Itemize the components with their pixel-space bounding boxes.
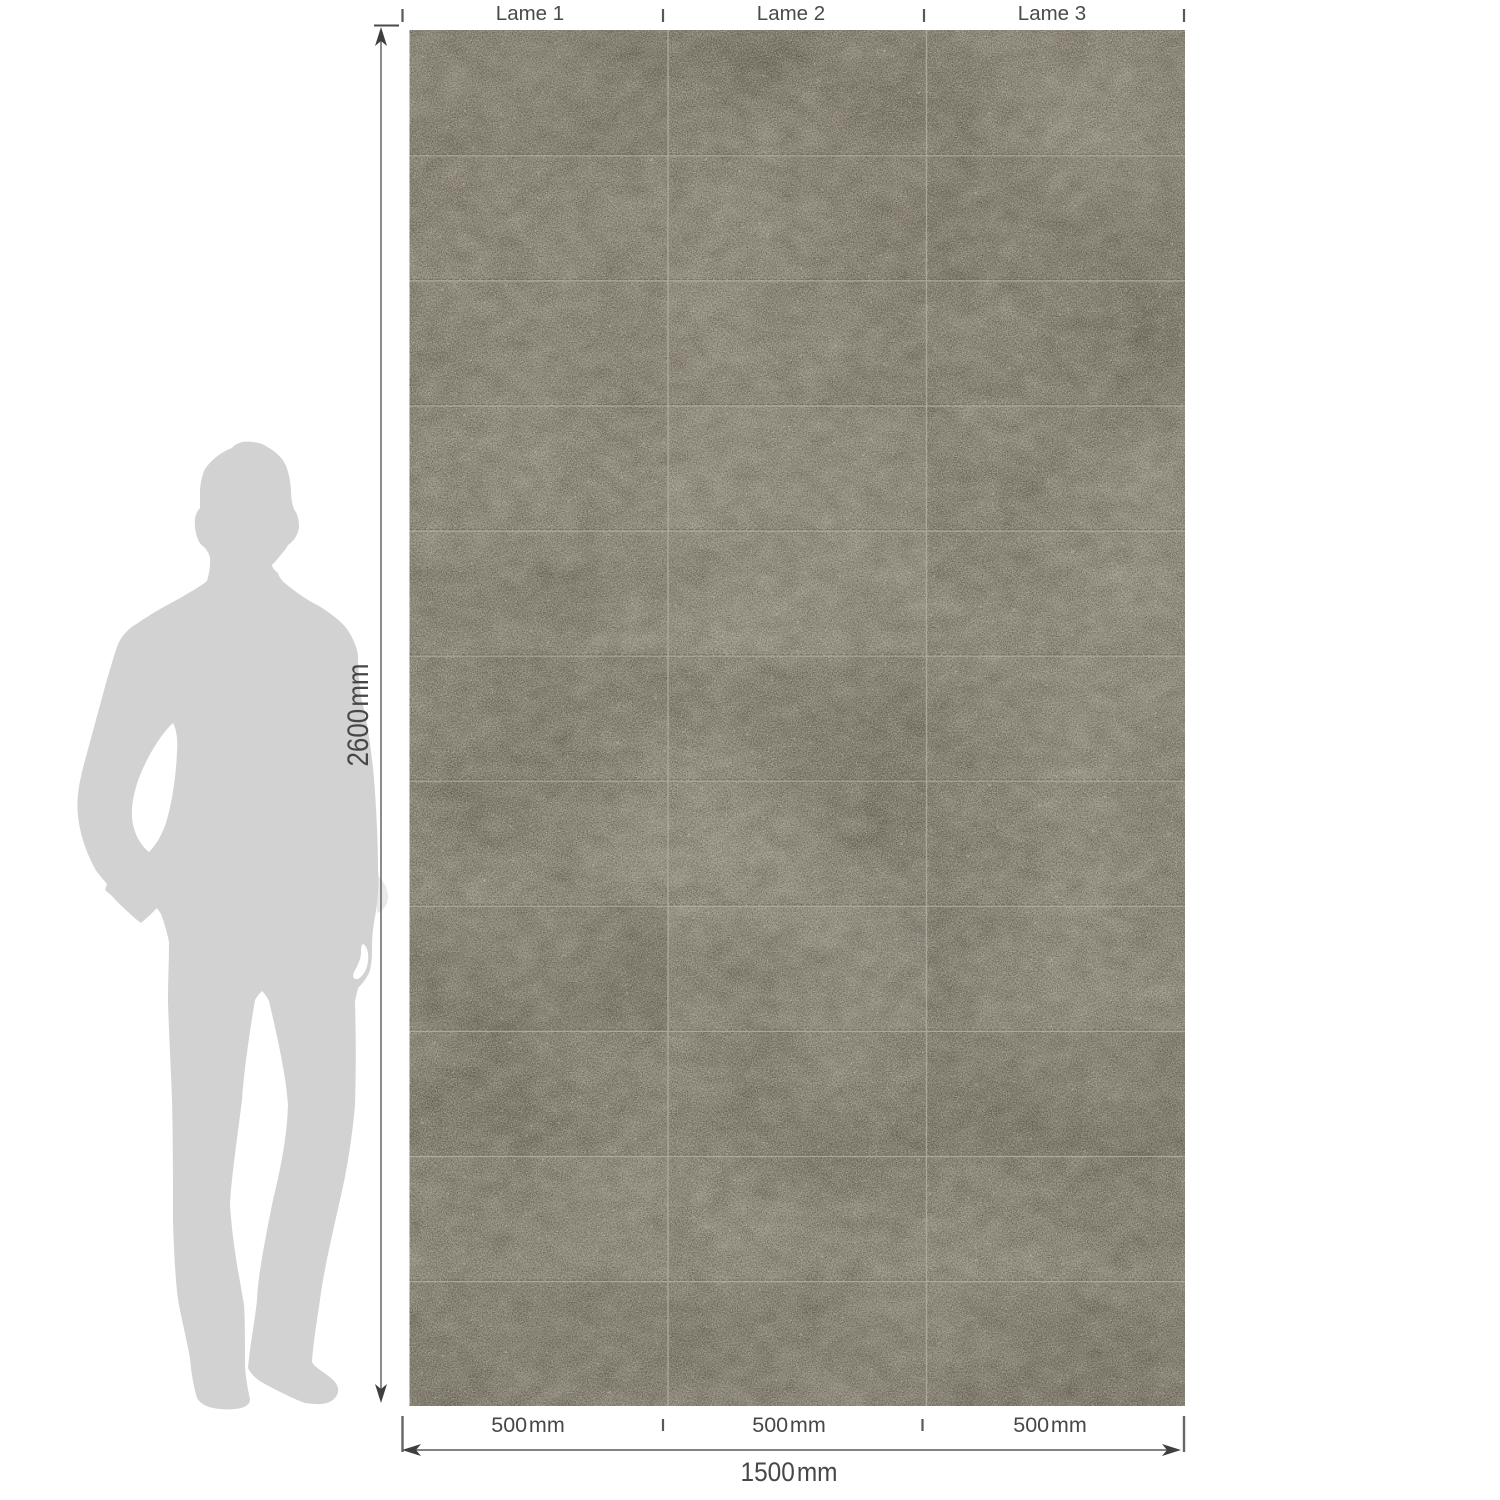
svg-text:Lame 3: Lame 3 <box>1018 2 1086 25</box>
svg-text:Lame 1: Lame 1 <box>496 2 564 25</box>
svg-text:2600 mm: 2600 mm <box>342 664 375 767</box>
svg-text:500 mm: 500 mm <box>1013 1413 1087 1437</box>
svg-text:Lame 2: Lame 2 <box>757 2 825 25</box>
svg-text:1500 mm: 1500 mm <box>741 1457 838 1487</box>
svg-text:500 mm: 500 mm <box>491 1413 565 1437</box>
svg-text:500 mm: 500 mm <box>752 1413 826 1437</box>
